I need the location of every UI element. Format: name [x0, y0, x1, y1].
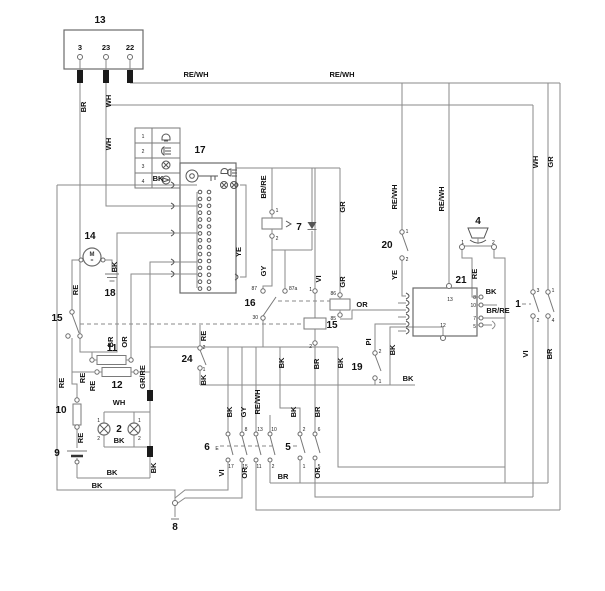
wire-rail-510 — [256, 462, 560, 510]
wire-label-vi: VI — [314, 275, 323, 282]
wire-label-br-re: BR/RE — [486, 306, 509, 315]
component-label-10: 10 — [55, 405, 67, 416]
component-label-9: 9 — [54, 448, 60, 459]
component-label-15: 15 — [326, 320, 338, 331]
component-label-12: 12 — [111, 380, 123, 391]
component-10-fuse — [73, 398, 81, 429]
wire-label-re-wh: RE/WH — [253, 390, 262, 415]
wire-label-3: 3 — [78, 43, 82, 52]
wire-label-vi: VI — [217, 469, 226, 476]
right-pins — [477, 295, 483, 327]
connector-pin — [207, 211, 211, 215]
component-1-switch — [531, 290, 554, 318]
terminal-label-2: 2 — [138, 436, 141, 442]
wiring-diagram: M = — [0, 0, 605, 591]
pin-rows — [172, 185, 197, 288]
connector-pin — [207, 197, 211, 201]
wire-label-bk: BK — [289, 406, 298, 417]
connector-pin — [198, 259, 202, 263]
component-14-motor: M = — [79, 248, 105, 266]
bell-icon — [221, 169, 228, 174]
terminal-label-10: 10 — [271, 427, 277, 433]
component-label-8: 8 — [172, 522, 178, 533]
terminal-label-1: 1 — [203, 367, 206, 373]
terminal-label-30: 30 — [252, 315, 258, 321]
terminal-label-3: 3 — [142, 164, 145, 170]
wire-label-re: RE — [470, 269, 479, 279]
component-16-relay — [261, 289, 350, 320]
wire-label-wh: WH — [104, 138, 113, 151]
wire-to-10 — [72, 372, 77, 398]
wire-label-bk: BK — [149, 462, 158, 473]
component-label-5: 5 — [285, 442, 291, 453]
wire-label-re: RE — [88, 381, 97, 391]
key-icon — [186, 170, 218, 182]
wire-label-vi: VI — [521, 350, 530, 357]
terminal-label-2: 2 — [272, 464, 275, 470]
wire-label-ye: YE — [234, 247, 243, 257]
connector-pin — [198, 252, 202, 256]
terminal-label-1: 1 — [97, 418, 100, 424]
terminal-label-2: 2 — [203, 345, 206, 351]
wire-or-to-21 — [340, 310, 406, 319]
component-label-16: 16 — [244, 298, 256, 309]
wire-label-23: 23 — [102, 43, 110, 52]
terminal-label-4: 4 — [142, 179, 145, 185]
component-label-18: 18 — [104, 288, 116, 299]
wire-label-re: RE — [199, 331, 208, 341]
connector-pin — [198, 190, 202, 194]
terminal-label-1: 1 — [309, 287, 312, 293]
terminal-label-2: 2 — [276, 236, 279, 242]
terminal-label-7: 7 — [473, 316, 476, 322]
wire-label-or: OR — [240, 467, 249, 479]
wire-label-re: RE — [57, 378, 66, 388]
component-label-1: 1 — [515, 299, 521, 310]
connector-pin — [207, 245, 211, 249]
component-9-battery — [67, 451, 87, 464]
wire-label-gr: GR — [546, 156, 555, 168]
terminal-label-87: 87 — [251, 286, 257, 292]
component-13-control-box — [64, 30, 143, 83]
terminal-label-86: 86 — [330, 291, 336, 297]
wire-harness — [57, 83, 560, 517]
component-label-4: 4 — [475, 216, 481, 227]
component-12-fuse — [95, 368, 138, 377]
bulb-icon — [162, 161, 170, 169]
lamp-icon — [128, 423, 140, 435]
pin5-arrow — [492, 321, 495, 329]
connector-pin — [207, 266, 211, 270]
wire-label-bk: BK — [388, 344, 397, 355]
wire-vi-to-8 — [175, 462, 228, 498]
wire-label-br: BR — [79, 101, 88, 112]
terminal-label-11: 11 — [256, 464, 261, 470]
terminal-label-1: 1 — [142, 134, 145, 140]
wire-label-bk: BK — [110, 261, 119, 272]
terminal-label-2: 2 — [309, 344, 312, 350]
wire-label-bk: BK — [153, 174, 164, 183]
connector-pin — [198, 204, 202, 208]
wire-rail-497 — [315, 460, 533, 497]
connector-pin — [198, 197, 202, 201]
connector-pin — [198, 218, 202, 222]
component-label-17: 17 — [194, 145, 206, 156]
fuse-glyph — [286, 221, 291, 227]
wire-label-or: OR — [120, 336, 129, 348]
wire-grre — [150, 262, 172, 390]
connector-pin — [198, 225, 202, 229]
wire-label-bk: BK — [114, 436, 125, 445]
mechanical-links — [80, 301, 531, 446]
terminal-label-6: 6 — [318, 427, 321, 433]
wire-label-or: OR — [356, 300, 368, 309]
pin-connector — [77, 70, 83, 83]
terminal-label-17: 17 — [228, 464, 234, 470]
component-label-13: 13 — [94, 15, 106, 26]
wire-label-bk: BK — [199, 374, 208, 385]
wire-label-bk: BK — [225, 406, 234, 417]
terminal-label-1: 1 — [379, 379, 382, 385]
component-7-fuse — [262, 210, 291, 238]
connector-pin — [207, 280, 211, 284]
terminal-label-2: 2 — [97, 436, 100, 442]
bulb-icon — [221, 182, 228, 189]
terminal-label-8: 8 — [245, 427, 248, 433]
wire-label-re-wh: RE/WH — [184, 70, 209, 79]
terminal-label-1: 1 — [138, 418, 141, 424]
connector-pin — [207, 273, 211, 277]
terminal-label-2: 2 — [379, 349, 382, 355]
wire-label-bk: BK — [277, 357, 286, 368]
terminal-label-1: 1 — [406, 229, 409, 235]
component-5-switch — [298, 432, 320, 460]
terminal-label-2: 2 — [406, 257, 409, 263]
wire-label-re-wh: RE/WH — [437, 187, 446, 212]
connector-pin — [207, 225, 211, 229]
terminal-label-4: 4 — [552, 318, 555, 324]
component-label-15: 15 — [51, 313, 63, 324]
wire-label-wh: WH — [104, 95, 113, 108]
wire-label-re: RE — [71, 285, 80, 295]
headlight-icon — [162, 147, 171, 155]
terminal-label-1: 1 — [276, 208, 279, 214]
terminal-label-e: E — [215, 446, 219, 452]
wire-br — [80, 83, 92, 358]
component-label-24: 24 — [181, 354, 193, 365]
connector-arrows-left — [171, 182, 174, 277]
wire-label-pi: PI — [364, 338, 373, 345]
component-4-horn — [460, 228, 497, 250]
bell-icon — [162, 134, 170, 141]
terminal-label-1: 1 — [552, 288, 555, 294]
wire-label-gy: GY — [239, 407, 248, 418]
wire-or-17 — [131, 274, 172, 358]
terminal-label-2: 2 — [303, 427, 306, 433]
connector-pin — [198, 239, 202, 243]
terminal-label-87a: 87a — [289, 286, 298, 292]
wiring-diagram-canvas: M = — [0, 0, 605, 591]
wire-label-br-re: BR/RE — [259, 175, 268, 198]
wire-label-re: RE — [78, 373, 87, 383]
pin-grid — [198, 190, 211, 290]
wire-label-re: RE — [76, 433, 85, 443]
connector-pin — [207, 204, 211, 208]
terminal-label-10: 10 — [470, 303, 476, 309]
wire-label-gr-re: GR/RE — [138, 365, 147, 389]
terminal-label-1: 1 — [461, 240, 464, 246]
wire-label-br: BR — [278, 472, 289, 481]
component-label-6: 6 — [204, 442, 210, 453]
wire-bk-right — [338, 347, 505, 467]
wire-ye-to-21 — [402, 260, 406, 296]
wire-label-bk: BK — [336, 357, 345, 368]
terminal-label-3: 3 — [537, 288, 540, 294]
connector-pin — [198, 245, 202, 249]
wire-label-bk: BK — [403, 374, 414, 383]
component-label-19: 19 — [351, 362, 363, 373]
component-label-2: 2 — [116, 424, 122, 435]
wire-label-re-wh: RE/WH — [330, 70, 355, 79]
component-21-connector — [406, 284, 483, 341]
wire-label-bk: BK — [92, 481, 103, 490]
connector-pin — [198, 287, 202, 291]
wire-label-bk: BK — [107, 468, 118, 477]
component-label-7: 7 — [296, 222, 302, 233]
wire-label-br: BR — [312, 358, 321, 369]
connector-arrows-right — [235, 182, 246, 280]
connector-pin — [198, 280, 202, 284]
wire-label-ye: YE — [390, 270, 399, 280]
svg-text:=: = — [91, 258, 94, 264]
connector-pin — [198, 273, 202, 277]
connector-pin — [207, 232, 211, 236]
labels-layer: 1332322RE/WHRE/WHBRWHWH123417BKYEBR/RE71… — [51, 15, 555, 533]
wire-label-gr: GR — [338, 201, 347, 213]
connector-pin — [198, 211, 202, 215]
lamp-icon — [98, 423, 110, 435]
terminal-label-12: 12 — [440, 323, 446, 329]
wire-label-22: 22 — [126, 43, 134, 52]
component-label-11: 11 — [107, 343, 118, 354]
component-label-21: 21 — [455, 275, 467, 286]
connector-pin — [198, 232, 202, 236]
terminal-label-13: 13 — [257, 427, 263, 433]
terminal-label-1: 1 — [303, 464, 306, 470]
connector-pin — [207, 190, 211, 194]
wire-label-or: OR — [313, 467, 322, 479]
wire-label-wh: WH — [531, 156, 540, 169]
terminal-label-2: 2 — [492, 240, 495, 246]
wire-label-re-wh: RE/WH — [390, 185, 399, 210]
terminal-label-13: 13 — [447, 297, 453, 303]
pin-connector — [103, 70, 109, 83]
component-label-14: 14 — [84, 231, 96, 242]
connector-pin — [207, 252, 211, 256]
terminal-label-5: 5 — [473, 324, 476, 330]
wire-label-gr: GR — [338, 276, 347, 288]
connector-pin — [207, 239, 211, 243]
terminal-label-2: 2 — [142, 149, 145, 155]
connector-pin — [207, 218, 211, 222]
component-label-20: 20 — [381, 240, 393, 251]
wire-label-wh: WH — [113, 398, 126, 407]
terminal-label-2: 2 — [537, 318, 540, 324]
wire-label-br: BR — [313, 406, 322, 417]
wire-label-gy: GY — [259, 266, 268, 277]
wire-15-to-12 — [72, 338, 94, 372]
component-6-switch — [226, 432, 275, 462]
pin-connector — [147, 390, 153, 401]
connector-pin — [198, 266, 202, 270]
wire-label-br: BR — [545, 348, 554, 359]
pin-connector — [127, 70, 133, 83]
terminal-label-8: 8 — [473, 295, 476, 301]
connector-pin — [207, 259, 211, 263]
wire-label-bk: BK — [486, 287, 497, 296]
component-11-fuse — [90, 356, 133, 365]
left-pin-arrows — [406, 293, 409, 334]
pin-connector — [147, 446, 153, 457]
connector-pin — [207, 287, 211, 291]
component-19-switch — [373, 351, 381, 380]
